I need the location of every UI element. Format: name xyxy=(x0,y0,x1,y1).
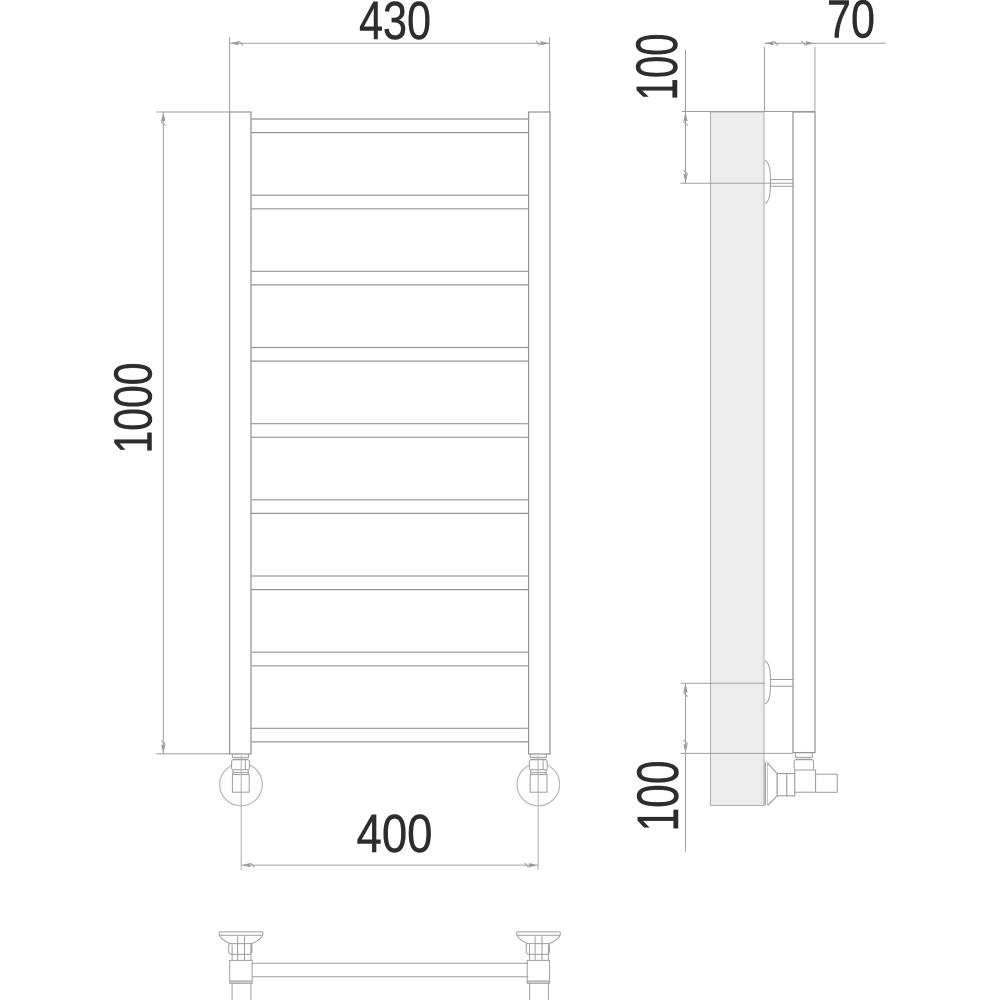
svg-text:1000: 1000 xyxy=(104,363,164,454)
svg-text:100: 100 xyxy=(625,34,690,101)
svg-text:430: 430 xyxy=(359,0,431,51)
svg-text:70: 70 xyxy=(827,0,875,50)
svg-text:100: 100 xyxy=(626,761,691,832)
svg-text:400: 400 xyxy=(357,804,433,864)
